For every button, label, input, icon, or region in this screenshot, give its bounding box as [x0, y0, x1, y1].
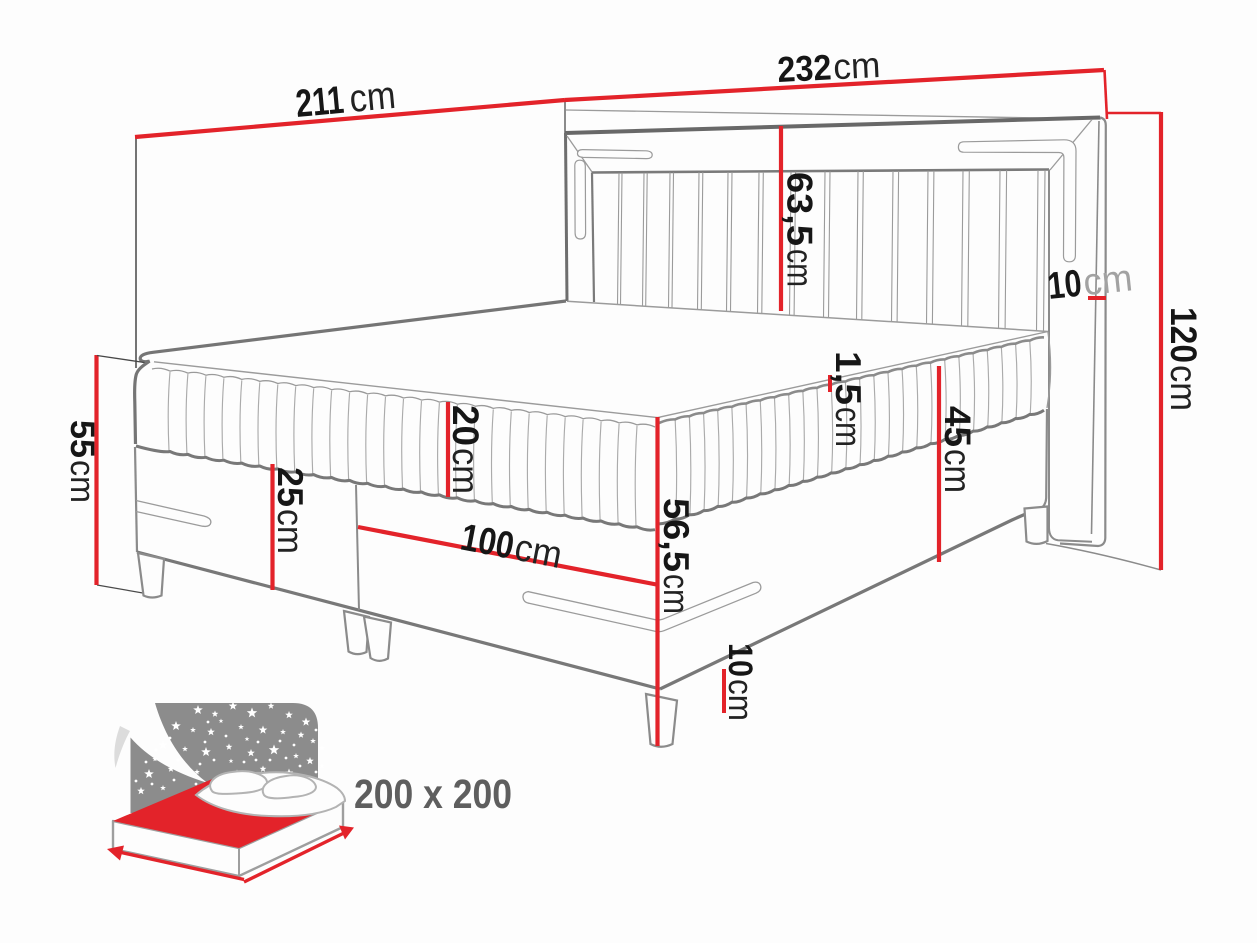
- svg-text:10cm: 10cm: [721, 643, 759, 721]
- svg-text:20cm: 20cm: [445, 405, 486, 494]
- svg-text:120cm: 120cm: [1163, 307, 1204, 411]
- svg-text:55cm: 55cm: [63, 420, 101, 503]
- svg-text:200 x 200: 200 x 200: [354, 771, 512, 817]
- svg-text:56,5cm: 56,5cm: [656, 498, 697, 614]
- svg-text:1,5cm: 1,5cm: [828, 351, 869, 447]
- svg-text:10cm: 10cm: [1046, 257, 1135, 308]
- svg-text:25cm: 25cm: [270, 467, 311, 554]
- svg-text:45cm: 45cm: [937, 406, 978, 493]
- svg-text:232cm: 232cm: [776, 44, 881, 90]
- svg-text:63,5cm: 63,5cm: [780, 172, 821, 287]
